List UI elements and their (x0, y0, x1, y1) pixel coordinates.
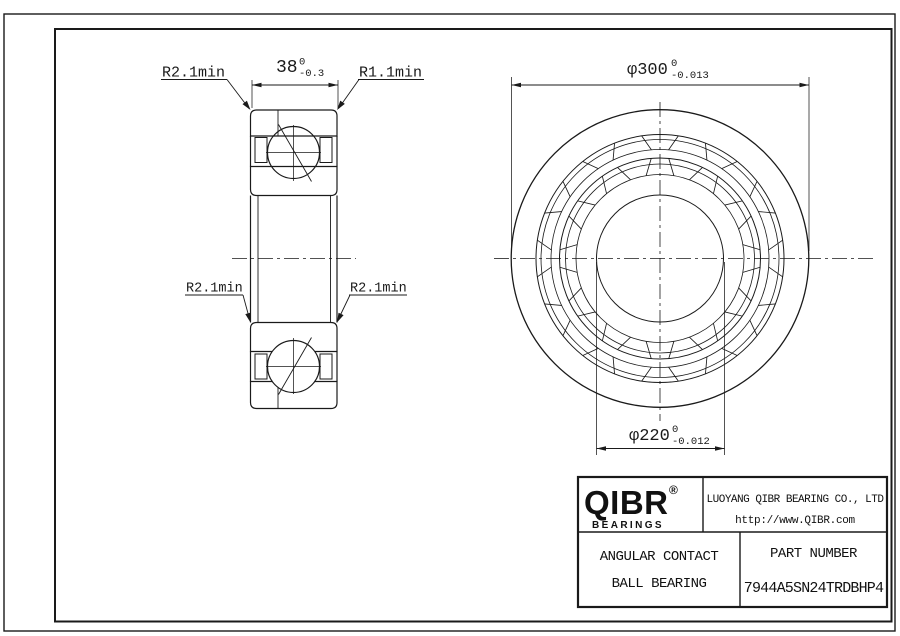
cage-section-left (255, 354, 267, 379)
radius-label: R2.1min (350, 282, 407, 297)
outer-page-border (4, 14, 895, 631)
cage-pocket-edge (743, 267, 760, 272)
arrowhead (334, 313, 343, 324)
section-view (232, 110, 356, 409)
radius-label: R2.1min (186, 282, 243, 297)
dim-od-value: φ300 (627, 61, 668, 80)
dimension-width-38: 38 0 -0.3 (252, 57, 338, 109)
cage-pocket-edge (705, 143, 706, 160)
radius-label: R1.1min (359, 65, 422, 82)
arrowhead (252, 83, 262, 88)
cage-pocket-edge (669, 136, 679, 150)
cage-pocket-edge (669, 367, 679, 381)
cage-pocket-edge (713, 176, 717, 194)
company-name: LUOYANG QIBR BEARING CO., LTD (707, 494, 885, 506)
cage-pocket-edge (669, 158, 674, 175)
dim-width-lower-tol: -0.3 (299, 68, 324, 80)
cage-pocket-edge (725, 201, 743, 205)
cage-pocket-edge (537, 267, 551, 277)
dim-bore-lower-tol: -0.012 (672, 436, 710, 448)
cage-pocket-edge (563, 320, 570, 335)
cage-pocket-edge (642, 367, 652, 381)
cage-pocket-edge (705, 357, 706, 374)
brand-logo-subtext: BEARINGS (592, 520, 664, 531)
radius-label: R2.1min (162, 65, 225, 82)
cage-pocket-edge (750, 320, 757, 335)
cage-pocket-edge (769, 240, 783, 250)
front-view (494, 102, 876, 421)
dim-bore-upper-tol: 0 (672, 424, 678, 436)
arrowhead (245, 313, 253, 324)
product-type-line2: BALL BEARING (612, 576, 707, 592)
cage-pocket-edge (758, 212, 775, 213)
cage-section-right (320, 354, 332, 379)
arrowhead (597, 446, 607, 451)
leader-radius-mid-left: R2.1min (185, 282, 253, 324)
cage-pocket-edge (545, 212, 562, 213)
cage-pocket-edge (602, 176, 606, 194)
product-type-line1: ANGULAR CONTACT (600, 549, 719, 565)
cage-pocket-edge (722, 161, 737, 168)
arrowhead (800, 83, 810, 88)
cage-pocket-edge (583, 161, 598, 168)
brand-logo: QIBR (584, 484, 669, 521)
cage-pocket-edge (725, 312, 743, 316)
cage-pocket-edge (560, 267, 577, 272)
cage-section-right (320, 138, 332, 163)
arrowhead (715, 446, 725, 451)
drawing-canvas: 38 0 -0.3 φ300 0 -0.013 φ220 0 -0.012 R2… (0, 0, 900, 636)
cage-section-left (255, 138, 267, 163)
cage-pocket-edge (646, 158, 651, 175)
cage-pocket-edge (713, 323, 717, 341)
cage-pocket-edge (537, 240, 551, 250)
dim-bore-value: φ220 (629, 427, 670, 446)
cage-pocket-edge (669, 341, 674, 358)
part-number-value: 7944A5SN24TRDBHP4 (744, 580, 884, 597)
title-block: QIBR ® BEARINGS LUOYANG QIBR BEARING CO.… (578, 477, 887, 607)
cage-pocket-edge (743, 245, 760, 250)
cage-pocket-edge (560, 245, 577, 250)
cage-pocket-edge (578, 312, 596, 316)
engineering-drawing-page: 38 0 -0.3 φ300 0 -0.013 φ220 0 -0.012 R2… (0, 0, 900, 636)
cage-pocket-edge (602, 323, 606, 341)
arrowhead (512, 83, 522, 88)
dim-od-lower-tol: -0.013 (671, 70, 709, 82)
cage-pocket-edge (578, 201, 596, 205)
dim-width-value: 38 (276, 58, 298, 78)
cage-pocket-edge (583, 348, 598, 355)
company-website: http://www.QIBR.com (735, 515, 855, 527)
dim-width-upper-tol: 0 (299, 57, 305, 69)
cage-pocket-edge (758, 304, 775, 305)
cage-pocket-edge (563, 181, 570, 196)
cage-pocket-edge (642, 136, 652, 150)
cage-pocket-edge (646, 341, 651, 358)
dim-od-upper-tol: 0 (671, 58, 677, 70)
registered-trademark-icon: ® (669, 483, 678, 497)
arrowhead (329, 83, 339, 88)
cage-pocket-edge (769, 267, 783, 277)
cage-pocket-edge (613, 143, 614, 160)
leader-radius-top-left: R2.1min (161, 65, 253, 112)
leader-radius-mid-right: R2.1min (334, 282, 407, 324)
cage-pocket-edge (545, 304, 562, 305)
part-number-label: PART NUMBER (770, 546, 858, 562)
cage-pocket-edge (613, 357, 614, 374)
cage-pocket-edge (750, 181, 757, 196)
leader-radius-top-right: R1.1min (335, 65, 424, 112)
cage-pocket-edge (722, 348, 737, 355)
contact-angle-line-top (279, 125, 312, 182)
